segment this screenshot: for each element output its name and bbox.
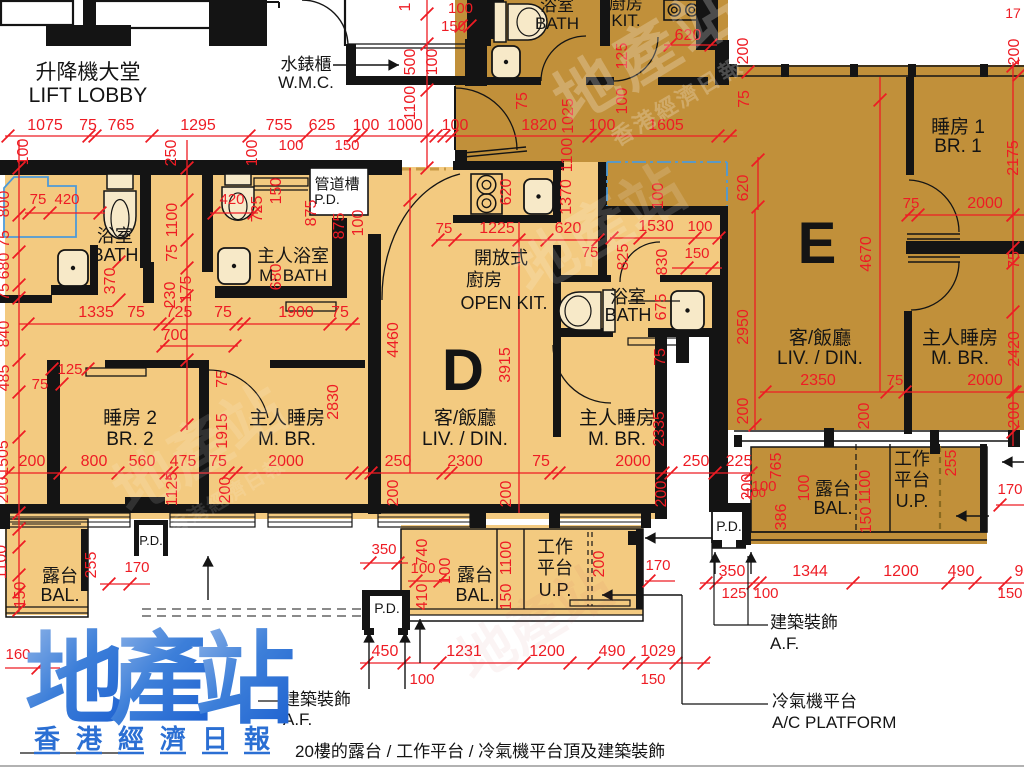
svg-text:740: 740 xyxy=(414,539,431,566)
svg-text:200: 200 xyxy=(653,481,670,508)
svg-text:75: 75 xyxy=(1006,251,1023,269)
svg-text:1225: 1225 xyxy=(479,220,515,237)
svg-text:2000: 2000 xyxy=(615,453,651,470)
svg-text:廚房: 廚房 xyxy=(466,269,502,290)
svg-text:255: 255 xyxy=(943,450,960,477)
svg-text:100: 100 xyxy=(796,475,813,502)
svg-text:100: 100 xyxy=(15,139,32,166)
svg-text:150: 150 xyxy=(640,671,665,688)
svg-text:680: 680 xyxy=(0,253,13,280)
svg-text:1100: 1100 xyxy=(498,541,515,576)
svg-text:露台: 露台 xyxy=(42,566,78,586)
svg-text:75: 75 xyxy=(532,453,550,470)
svg-text:20樓的露台 / 工作平台 / 冷氣機平台頂及建築裝飾: 20樓的露台 / 工作平台 / 冷氣機平台頂及建築裝飾 xyxy=(295,742,665,761)
svg-text:200: 200 xyxy=(1006,39,1023,66)
svg-text:75: 75 xyxy=(436,220,453,237)
svg-text:1075: 1075 xyxy=(27,117,63,134)
svg-text:125: 125 xyxy=(721,585,746,602)
svg-text:睡房 2: 睡房 2 xyxy=(103,407,157,429)
svg-text:100: 100 xyxy=(278,137,303,154)
svg-text:100: 100 xyxy=(353,117,380,134)
svg-text:冷氣機平台: 冷氣機平台 xyxy=(772,692,857,711)
svg-text:75: 75 xyxy=(736,90,753,108)
svg-text:620: 620 xyxy=(735,175,752,202)
svg-text:75: 75 xyxy=(0,230,13,248)
svg-text:150: 150 xyxy=(268,178,285,205)
svg-text:75: 75 xyxy=(32,376,49,393)
svg-text:100: 100 xyxy=(448,0,473,17)
svg-text:2420: 2420 xyxy=(1006,331,1023,367)
svg-text:450: 450 xyxy=(372,643,399,660)
svg-text:150: 150 xyxy=(997,585,1022,602)
svg-text:725: 725 xyxy=(166,304,193,321)
svg-text:150: 150 xyxy=(684,245,709,262)
svg-text:1344: 1344 xyxy=(792,563,828,580)
svg-text:100: 100 xyxy=(409,671,434,688)
svg-text:2350: 2350 xyxy=(800,372,836,389)
svg-text:BR. 1: BR. 1 xyxy=(934,136,982,157)
svg-text:75: 75 xyxy=(0,283,13,301)
svg-text:1200: 1200 xyxy=(883,563,919,580)
svg-text:LIFT LOBBY: LIFT LOBBY xyxy=(29,84,148,107)
svg-text:100: 100 xyxy=(424,49,441,76)
svg-text:9: 9 xyxy=(1015,563,1024,580)
svg-text:840: 840 xyxy=(0,321,13,348)
svg-text:BAL.: BAL. xyxy=(40,585,79,605)
svg-text:1029: 1029 xyxy=(640,643,676,660)
svg-text:75: 75 xyxy=(887,372,904,389)
svg-text:主人浴室: 主人浴室 xyxy=(257,246,329,266)
svg-text:BAL.: BAL. xyxy=(455,585,494,605)
svg-text:100: 100 xyxy=(244,140,261,167)
svg-text:75: 75 xyxy=(214,304,232,321)
svg-text:75: 75 xyxy=(903,195,920,212)
svg-text:報: 報 xyxy=(244,724,271,754)
svg-text:LIV. / DIN.: LIV. / DIN. xyxy=(777,348,863,369)
svg-text:主人睡房: 主人睡房 xyxy=(579,407,655,429)
svg-text:250: 250 xyxy=(385,453,412,470)
svg-text:浴室: 浴室 xyxy=(540,0,574,15)
svg-text:1100: 1100 xyxy=(402,86,419,121)
svg-text:420: 420 xyxy=(219,191,244,208)
svg-text:170: 170 xyxy=(124,559,149,576)
svg-text:浴室: 浴室 xyxy=(97,226,133,246)
svg-text:875: 875 xyxy=(331,213,348,240)
svg-text:170: 170 xyxy=(997,481,1022,498)
svg-text:升降機大堂: 升降機大堂 xyxy=(36,61,141,84)
svg-text:420: 420 xyxy=(54,191,79,208)
svg-text:485: 485 xyxy=(0,365,13,392)
svg-text:P.D.: P.D. xyxy=(716,518,741,534)
svg-text:2830: 2830 xyxy=(325,384,342,420)
svg-text:725: 725 xyxy=(249,196,266,223)
svg-text:100: 100 xyxy=(753,585,778,602)
svg-text:200: 200 xyxy=(0,477,12,504)
svg-text:E: E xyxy=(798,211,837,276)
svg-text:4460: 4460 xyxy=(385,322,402,358)
svg-text:225: 225 xyxy=(726,453,753,470)
svg-text:800: 800 xyxy=(0,191,13,218)
svg-text:經: 經 xyxy=(118,724,144,754)
svg-text:100: 100 xyxy=(744,485,766,500)
svg-text:675: 675 xyxy=(653,294,670,321)
svg-text:100: 100 xyxy=(442,117,469,134)
svg-text:625: 625 xyxy=(309,117,336,134)
svg-text:200: 200 xyxy=(1006,402,1023,429)
svg-text:客/飯廳: 客/飯廳 xyxy=(434,407,496,429)
svg-text:490: 490 xyxy=(599,643,626,660)
svg-text:工作: 工作 xyxy=(537,537,573,557)
svg-text:2175: 2175 xyxy=(1005,140,1022,176)
svg-text:1820: 1820 xyxy=(521,117,557,134)
svg-text:D: D xyxy=(442,338,484,403)
svg-text:410: 410 xyxy=(414,584,431,611)
svg-text:平台: 平台 xyxy=(894,470,930,490)
svg-text:3915: 3915 xyxy=(497,347,514,383)
svg-text:濟: 濟 xyxy=(160,724,186,754)
svg-text:M. BR.: M. BR. xyxy=(931,348,989,369)
svg-text:A.F.: A.F. xyxy=(770,634,799,653)
svg-text:500: 500 xyxy=(402,49,419,76)
svg-text:P.D.: P.D. xyxy=(374,600,399,616)
svg-text:A/C PLATFORM: A/C PLATFORM xyxy=(772,713,896,732)
svg-text:125: 125 xyxy=(57,361,82,378)
svg-text:1100: 1100 xyxy=(559,138,576,173)
svg-text:490: 490 xyxy=(948,563,975,580)
svg-text:1295: 1295 xyxy=(180,117,216,134)
svg-text:75: 75 xyxy=(79,117,97,134)
svg-text:2000: 2000 xyxy=(967,195,1003,212)
svg-text:75: 75 xyxy=(164,244,181,262)
svg-text:765: 765 xyxy=(768,453,785,480)
svg-text:250: 250 xyxy=(163,140,180,167)
svg-text:800: 800 xyxy=(81,453,108,470)
svg-text:370: 370 xyxy=(102,268,119,295)
svg-text:2950: 2950 xyxy=(735,309,752,345)
svg-text:2300: 2300 xyxy=(447,453,483,470)
svg-text:港: 港 xyxy=(76,724,103,754)
svg-text:LIV. / DIN.: LIV. / DIN. xyxy=(422,429,508,450)
svg-text:200: 200 xyxy=(385,480,402,507)
svg-text:M. BR.: M. BR. xyxy=(588,429,646,450)
svg-text:2000: 2000 xyxy=(967,372,1003,389)
svg-text:150: 150 xyxy=(334,137,359,154)
svg-text:1100: 1100 xyxy=(0,545,10,580)
svg-text:700: 700 xyxy=(162,327,189,344)
svg-text:620: 620 xyxy=(498,179,515,206)
svg-text:200: 200 xyxy=(19,453,46,470)
svg-text:830: 830 xyxy=(654,249,671,276)
svg-text:200: 200 xyxy=(735,398,752,425)
svg-text:75: 75 xyxy=(331,304,349,321)
svg-text:100: 100 xyxy=(350,210,367,237)
svg-text:水錶櫃: 水錶櫃 xyxy=(281,55,332,74)
svg-text:露台: 露台 xyxy=(815,479,851,499)
svg-text:200: 200 xyxy=(498,481,515,508)
svg-text:17: 17 xyxy=(1005,5,1021,21)
svg-text:BATH: BATH xyxy=(605,305,652,325)
svg-text:睡房 1: 睡房 1 xyxy=(931,116,985,138)
svg-text:1900: 1900 xyxy=(278,304,314,321)
svg-text:170: 170 xyxy=(645,557,670,574)
svg-text:BATH: BATH xyxy=(535,14,579,33)
svg-text:1100: 1100 xyxy=(164,203,181,238)
svg-text:75: 75 xyxy=(514,92,531,110)
svg-text:P.D.: P.D. xyxy=(314,191,339,207)
svg-text:386: 386 xyxy=(773,504,790,531)
svg-text:日: 日 xyxy=(202,724,228,754)
svg-text:M. BATH: M. BATH xyxy=(259,266,327,285)
svg-text:U.P.: U.P. xyxy=(896,491,929,511)
svg-text:工作: 工作 xyxy=(894,449,930,469)
svg-text:P.D.: P.D. xyxy=(139,533,163,548)
svg-text:350: 350 xyxy=(719,563,746,580)
svg-text:站: 站 xyxy=(195,624,295,736)
svg-text:765: 765 xyxy=(108,117,135,134)
svg-text:755: 755 xyxy=(266,117,293,134)
svg-text:4670: 4670 xyxy=(858,236,875,272)
svg-text:BATH: BATH xyxy=(92,245,139,265)
svg-text:建築裝飾: 建築裝飾 xyxy=(770,613,838,632)
svg-text:75: 75 xyxy=(30,191,47,208)
svg-text:客/飯廳: 客/飯廳 xyxy=(789,327,851,349)
svg-text:1100: 1100 xyxy=(857,470,874,505)
svg-text:浴室: 浴室 xyxy=(610,287,646,307)
svg-text:75: 75 xyxy=(127,304,145,321)
svg-text:250: 250 xyxy=(683,453,710,470)
svg-text:75: 75 xyxy=(214,370,231,388)
svg-text:主人睡房: 主人睡房 xyxy=(922,327,998,349)
svg-text:1335: 1335 xyxy=(78,304,114,321)
svg-text:75: 75 xyxy=(652,348,669,366)
svg-text:255: 255 xyxy=(83,552,100,579)
svg-text:BAL.: BAL. xyxy=(813,498,852,518)
svg-text:150: 150 xyxy=(12,582,29,609)
svg-text:1: 1 xyxy=(397,2,414,11)
svg-text:150: 150 xyxy=(441,18,466,35)
svg-text:150: 150 xyxy=(858,507,875,534)
svg-text:露台: 露台 xyxy=(457,565,493,585)
svg-text:200: 200 xyxy=(856,403,873,430)
svg-text:W.M.C.: W.M.C. xyxy=(278,73,334,92)
svg-text:香: 香 xyxy=(34,724,60,754)
svg-text:350: 350 xyxy=(371,541,396,558)
svg-text:175: 175 xyxy=(178,276,195,303)
